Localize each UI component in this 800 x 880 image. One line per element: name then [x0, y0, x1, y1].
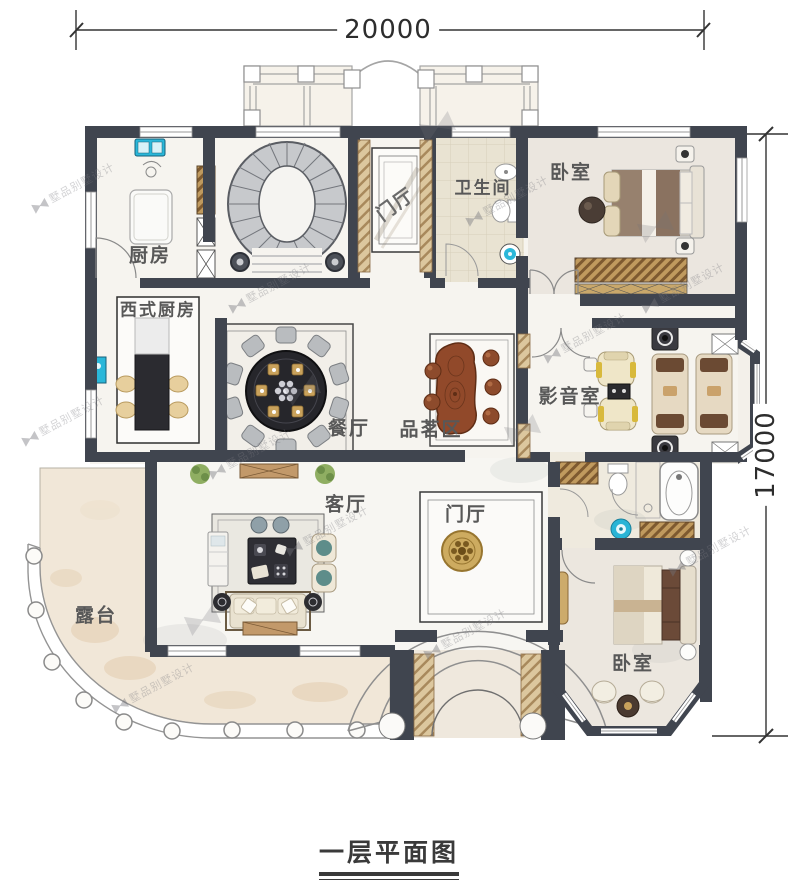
plan-title-text: 一层平面图: [319, 840, 459, 865]
room-label-bedroom-bottom: 卧室: [612, 655, 654, 674]
room-label-bedroom-top: 卧室: [550, 164, 592, 183]
room-label-kitchen: 厨房: [129, 247, 171, 266]
room-label-foyer-center: 门厅: [445, 506, 487, 525]
porch-post-left: [379, 713, 405, 739]
porch-post-right: [520, 713, 546, 739]
room-label-dining: 餐厅: [328, 420, 370, 439]
room-label-terrace: 露台: [75, 607, 117, 626]
room-label-media-room: 影音室: [538, 388, 601, 407]
dimension-label-width: 20000: [337, 17, 439, 43]
floor-plan-page: 20000 17000 厨房 西式厨房 门厅 卫生间 卧室 餐厅 品茗区 影音室…: [0, 0, 800, 880]
foyer-medallion: [442, 531, 482, 571]
plan-title: 一层平面图: [319, 840, 459, 880]
room-label-bathroom: 卫生间: [455, 181, 512, 198]
top-porch: [244, 61, 538, 126]
spiral-staircase: [228, 142, 346, 282]
title-underline-thick: [319, 872, 459, 876]
room-label-living-room: 客厅: [325, 496, 367, 515]
dimension-label-height: 17000: [753, 404, 779, 506]
room-label-tea-area: 品茗区: [399, 421, 462, 440]
room-label-western-kitchen: 西式厨房: [120, 303, 196, 320]
